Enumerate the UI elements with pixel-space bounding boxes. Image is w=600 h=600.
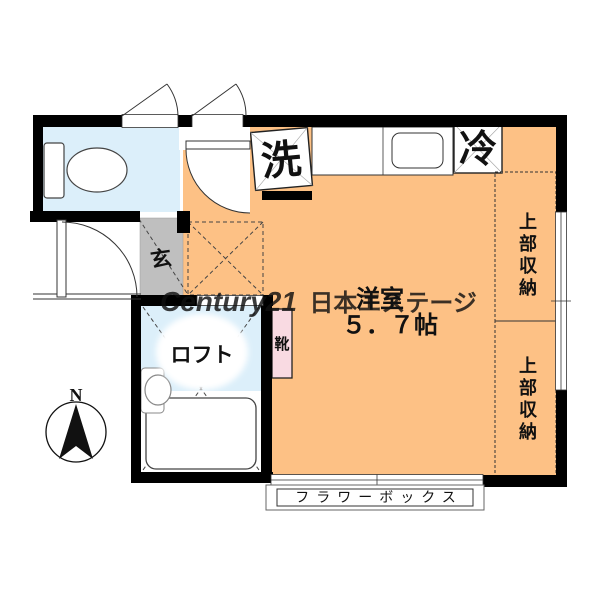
top-window-swings — [122, 84, 246, 116]
toilet-tank — [44, 143, 64, 198]
label-storage-top: 上部収納 — [517, 212, 537, 300]
watermark-brand: Century21 — [160, 286, 297, 317]
refrigerator-box: 冷 — [454, 124, 502, 173]
label-shoes: 靴 — [274, 335, 289, 353]
bottom-window — [271, 475, 483, 486]
label-loft: ロフト — [171, 344, 234, 367]
entrance-threshold — [33, 294, 141, 299]
floor-plan-page: 洗 冷 — [0, 0, 600, 600]
top-window-1 — [122, 115, 178, 128]
label-washing-machine: 洗 — [259, 137, 303, 184]
label-refrigerator: 冷 — [459, 129, 497, 171]
bath-basin — [145, 375, 171, 405]
label-storage-bottom: 上部収納 — [517, 356, 537, 444]
label-north: N — [70, 385, 83, 405]
entrance-door — [57, 220, 137, 297]
north-arrow: N — [46, 385, 106, 462]
kitchen-sink — [392, 133, 443, 168]
label-flower-box: フラワーボックス — [295, 489, 463, 505]
label-room-size: ５．７帖 — [342, 312, 438, 339]
floor-plan-canvas: 洗 冷 — [0, 0, 600, 600]
label-entrance: 玄 — [149, 246, 173, 273]
washing-machine-box: 洗 — [251, 128, 313, 191]
toilet-bowl — [67, 148, 127, 192]
label-room-name: 洋室 — [356, 285, 404, 313]
top-window-2 — [192, 115, 243, 128]
